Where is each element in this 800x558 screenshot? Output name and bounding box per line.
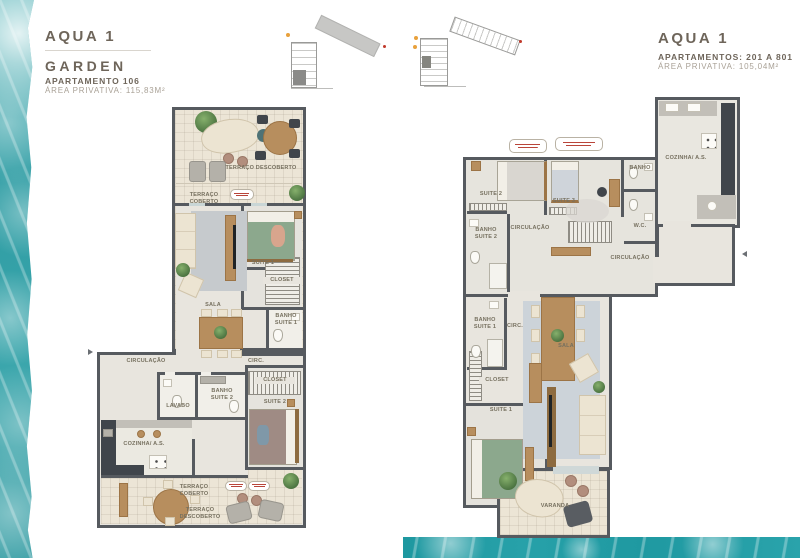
nightstand <box>467 427 476 436</box>
bed-suite3 <box>551 161 579 203</box>
room-label-terraco-coberto-b: TERRAÇO COBERTO <box>167 484 221 498</box>
vanity-counter <box>200 376 226 384</box>
dresser <box>525 447 534 481</box>
room-label-wc: W.C. <box>625 223 655 230</box>
plant-icon <box>551 329 564 342</box>
closet-shelving <box>469 351 482 401</box>
stool <box>137 430 145 438</box>
pouf <box>577 485 589 497</box>
corridor-shell <box>656 224 735 286</box>
chair <box>255 151 266 160</box>
room-label-varanda: VARANDA <box>533 503 577 510</box>
keymap2-sun-icon <box>414 36 418 40</box>
keymap2-marker-icon <box>519 40 522 43</box>
water-texture-left <box>0 0 34 558</box>
bench <box>119 483 128 517</box>
toilet <box>229 400 239 413</box>
room-label-circ: CIRC. <box>245 358 267 365</box>
armchair <box>189 161 206 182</box>
sofa <box>175 213 196 269</box>
left-title-divider <box>45 50 151 51</box>
staircase <box>568 221 612 243</box>
keymap1-marker-icon <box>383 45 386 48</box>
room-label-circulacao-upper: CIRCULAÇÃO <box>507 225 553 232</box>
floor-plan-garden-106: TERRAÇO DESCOBERTO TERRAÇO COBERTO SALA … <box>97 107 306 528</box>
room-label-banho: BANHO <box>625 165 655 172</box>
plant-icon <box>593 381 605 393</box>
kitchen-counter-2 <box>116 465 144 475</box>
bed-throw <box>271 225 285 247</box>
fridge-cabinets <box>721 103 735 197</box>
brochure-page: AQUA 1 GARDEN APARTAMENTO 106 ÁREA PRIVA… <box>0 0 800 558</box>
left-unit: APARTAMENTO 106 <box>45 76 140 86</box>
keymap2-sun-icon-2 <box>413 45 417 49</box>
chair <box>289 119 300 128</box>
chair <box>531 305 540 318</box>
chair <box>289 149 300 158</box>
toilet <box>273 329 283 342</box>
room-label-banho-suite1: BANHO SUITE 1 <box>270 313 302 327</box>
shower <box>487 339 503 367</box>
wardrobe <box>469 203 507 211</box>
room-label-suite1: SUITE 1 <box>243 260 283 267</box>
ribbon-tag <box>225 481 247 491</box>
ribbon-tag <box>509 139 547 153</box>
room-label-circ: CIRC. <box>505 323 525 330</box>
ribbon-tag <box>248 481 270 491</box>
nightstand <box>471 161 481 171</box>
entry-arrow-icon <box>88 349 93 355</box>
room-label-suite3: SUITE 3 <box>547 198 581 205</box>
plant-icon <box>176 263 190 277</box>
chair <box>201 350 212 358</box>
room-label-circulacao: CIRCULAÇÃO <box>123 358 169 365</box>
room-label-sala: SALA <box>201 302 225 309</box>
left-subtitle: GARDEN <box>45 58 127 74</box>
plant-icon <box>283 473 299 489</box>
left-area: ÁREA PRIVATIVA: 115,83M² <box>45 86 165 95</box>
chair <box>217 309 228 317</box>
plant-icon <box>499 472 517 490</box>
kitchen-sink <box>707 201 717 211</box>
wall <box>504 298 507 370</box>
room-label-suite1: SUITE 1 <box>479 407 523 414</box>
keymap1-street-caption <box>291 88 333 89</box>
room-label-cozinha: COZINHA/ A.S. <box>123 441 165 448</box>
chair <box>165 517 175 526</box>
console <box>551 247 591 256</box>
door-gap <box>201 372 211 375</box>
room-label-suite2: SUITE 2 <box>471 191 511 198</box>
chair <box>576 329 585 342</box>
laundry-sink <box>687 103 701 112</box>
desk <box>609 179 620 207</box>
tv <box>233 225 236 269</box>
sink <box>644 213 653 221</box>
chair <box>257 115 268 124</box>
room-label-circulacao-right: CIRCULAÇÃO <box>601 255 659 262</box>
chair <box>231 309 242 317</box>
room-label-closet1: CLOSET <box>263 277 301 284</box>
door-gap <box>165 372 175 375</box>
room-label-banho-suite1: BANHO SUITE 1 <box>469 317 501 331</box>
bed-throw <box>257 425 269 445</box>
terrace-divider <box>176 183 302 184</box>
sofa <box>579 395 606 455</box>
chair <box>231 350 242 358</box>
wall <box>157 372 160 420</box>
room-label-lavabo: LAVABO <box>161 403 195 410</box>
toilet <box>471 345 481 358</box>
wall <box>621 159 624 217</box>
kitchen-sink <box>103 429 113 437</box>
ribbon-tag <box>555 137 603 151</box>
wall <box>624 241 655 244</box>
left-title: AQUA 1 <box>45 28 116 45</box>
desk-chair <box>597 187 607 197</box>
floor-plan-type-201-801: SUITE 2 SUITE 3 BANHO COZINHA/ A.S. W.C.… <box>463 95 740 545</box>
stove <box>149 455 167 469</box>
right-title: AQUA 1 <box>658 30 729 47</box>
keymap1-sun-icon <box>286 33 290 37</box>
plant-icon <box>289 185 305 201</box>
wall <box>240 348 306 356</box>
pouf <box>565 475 577 487</box>
room-label-terraco-descoberto-b: TERRAÇO DESCOBERTO <box>177 507 223 521</box>
nightstand <box>294 211 302 219</box>
tv <box>549 395 552 447</box>
chair <box>531 329 540 342</box>
right-area: ÁREA PRIVATIVA: 105,04M² <box>658 62 779 71</box>
wall <box>266 310 269 351</box>
entry-arrow-icon <box>742 251 747 257</box>
sink <box>489 301 499 309</box>
right-unit: APARTAMENTOS: 201 A 801 <box>658 52 793 62</box>
plant-icon <box>214 326 227 339</box>
chair <box>201 309 212 317</box>
wall <box>245 365 306 368</box>
room-label-cozinha: COZINHA/ A.S. <box>665 155 707 162</box>
opening <box>663 221 691 231</box>
stove <box>701 133 717 149</box>
room-label-closet2: CLOSET <box>255 377 295 384</box>
shower <box>489 263 507 289</box>
wall <box>241 307 306 310</box>
wall <box>192 439 195 478</box>
chair <box>576 305 585 318</box>
ribbon-tag <box>230 189 254 200</box>
wall <box>195 375 198 420</box>
keymap2-highlight-unit <box>422 56 431 68</box>
room-label-sala: SALA <box>551 343 581 350</box>
wall <box>245 467 306 470</box>
glass-door <box>553 466 599 474</box>
kitchen-peninsula <box>116 420 192 428</box>
chair <box>143 497 153 506</box>
toilet <box>470 251 480 264</box>
desk <box>529 363 542 403</box>
stool <box>153 430 161 438</box>
glass-door <box>251 203 267 206</box>
toilet <box>629 199 638 211</box>
wall <box>101 475 248 478</box>
room-label-banho-suite2: BANHO SUITE 2 <box>204 388 240 402</box>
laundry-sink <box>665 103 679 112</box>
chair <box>217 350 228 358</box>
keymap2-building-bar <box>449 16 520 55</box>
room-label-closet: CLOSET <box>479 377 515 384</box>
room-label-terraco-descoberto: TERRAÇO DESCOBERTO <box>219 165 303 172</box>
keymap1-highlight-unit <box>293 70 306 85</box>
room-label-suite2: SUITE 2 <box>255 399 295 406</box>
keymap1-building-bar <box>315 15 381 57</box>
room-label-banho-suite2: BANHO SUITE 2 <box>469 227 503 241</box>
opening <box>508 291 540 301</box>
sink <box>163 379 172 387</box>
wall <box>467 211 507 214</box>
keymap2-street-caption <box>424 86 466 87</box>
bed-headboard <box>295 409 299 463</box>
sink <box>469 219 479 227</box>
wall <box>624 189 655 192</box>
room-label-terraco-coberto: TERRAÇO COBERTO <box>179 192 229 206</box>
